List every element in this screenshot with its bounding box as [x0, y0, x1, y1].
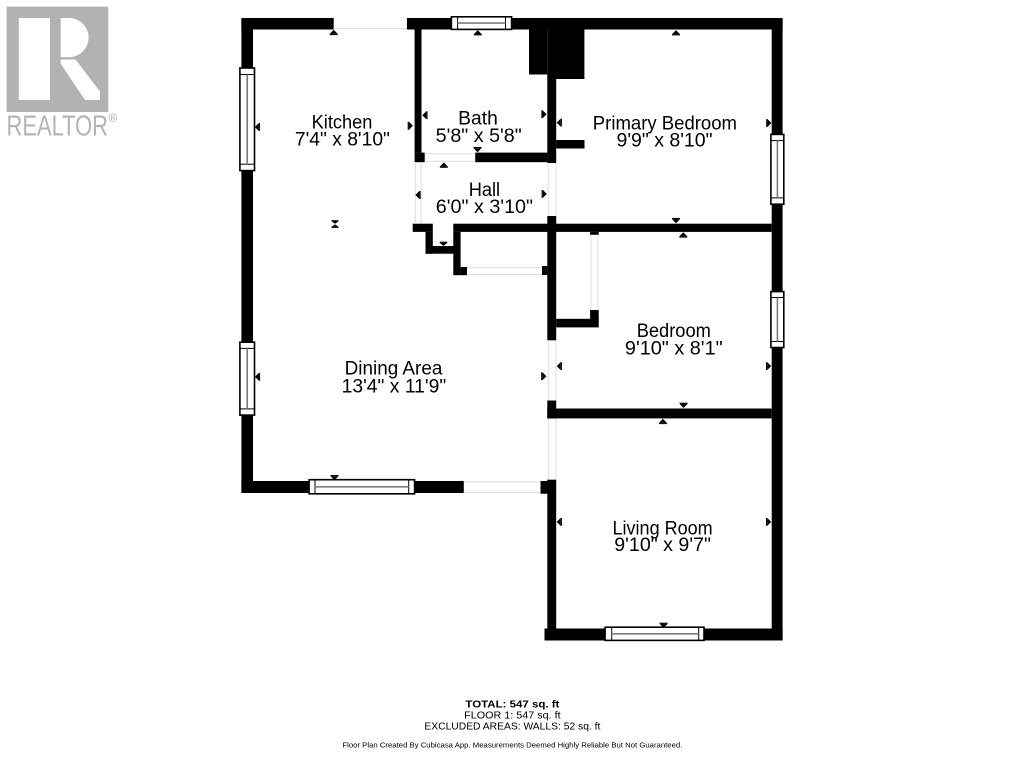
svg-text:6'0" x 3'10": 6'0" x 3'10"	[436, 197, 533, 218]
svg-text:9'10" x 9'7": 9'10" x 9'7"	[614, 535, 711, 556]
svg-text:9'10" x 8'1": 9'10" x 8'1"	[625, 339, 723, 360]
svg-text:REALTOR: REALTOR	[7, 111, 109, 143]
svg-text:Floor Plan Created By Cubicasa: Floor Plan Created By Cubicasa App. Meas…	[342, 743, 682, 750]
svg-text:7'4" x 8'10": 7'4" x 8'10"	[295, 130, 390, 151]
svg-text:®: ®	[109, 111, 118, 125]
svg-text:EXCLUDED AREAS: WALLS: 52 sq.: EXCLUDED AREAS: WALLS: 52 sq. ft	[424, 721, 600, 733]
svg-text:13'4" x 11'9": 13'4" x 11'9"	[342, 376, 447, 397]
svg-text:5'8" x 5'8": 5'8" x 5'8"	[436, 126, 522, 147]
svg-text:9'9" x 8'10": 9'9" x 8'10"	[617, 131, 713, 152]
